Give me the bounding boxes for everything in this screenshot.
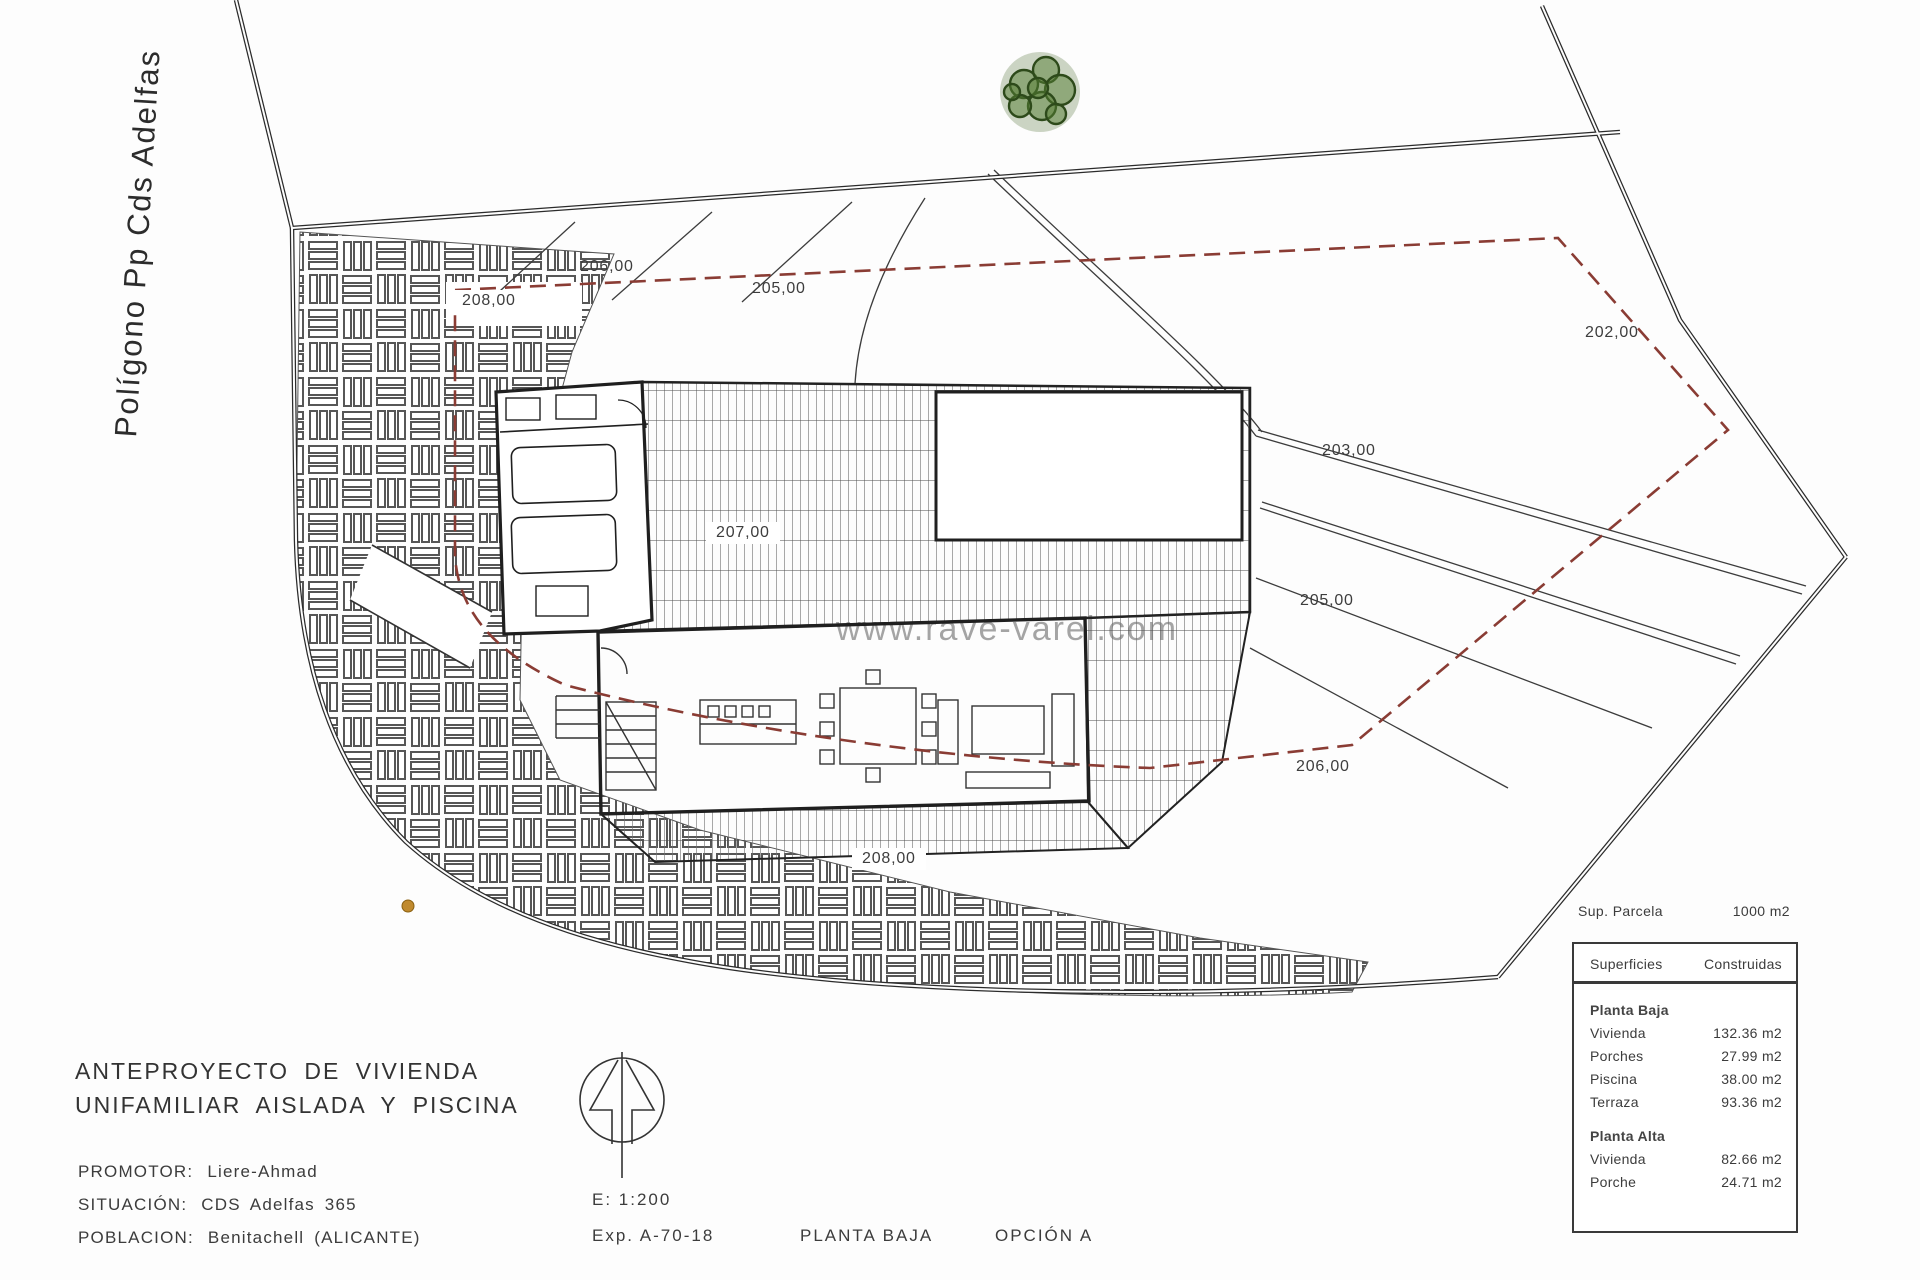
row-label: Vivienda: [1590, 1025, 1646, 1041]
tree-icon: [1000, 52, 1080, 132]
section-planta-baja: Planta Baja: [1574, 984, 1796, 1018]
parcel-area-row: Sup. Parcela 1000 m2: [1578, 903, 1790, 919]
promotor-row: PROMOTOR:Liere-Ahmad: [78, 1162, 318, 1182]
section-planta-alta: Planta Alta: [1574, 1110, 1796, 1144]
row-label: Porches: [1590, 1048, 1643, 1064]
stairs: [606, 702, 656, 790]
parcel-area-label: Sup. Parcela: [1578, 903, 1663, 919]
contour-label-202: 202,00: [1585, 324, 1639, 342]
parcel-area-value: 1000 m2: [1733, 903, 1790, 919]
north-arrow-icon: [580, 1052, 664, 1178]
row-value: 82.66 m2: [1721, 1151, 1782, 1167]
table-row: Terraza 93.36 m2: [1574, 1087, 1796, 1110]
contour-label-208-box: 208,00: [452, 290, 526, 312]
poblacion-row: POBLACION:Benitachell (ALICANTE): [78, 1228, 421, 1248]
poblacion-value: Benitachell (ALICANTE): [208, 1228, 421, 1247]
row-value: 27.99 m2: [1721, 1048, 1782, 1064]
row-label: Piscina: [1590, 1071, 1637, 1087]
row-label: Vivienda: [1590, 1151, 1646, 1167]
contour-label-205-top: 205,00: [752, 280, 806, 298]
table-row: Piscina 38.00 m2: [1574, 1064, 1796, 1087]
situacion-value: CDS Adelfas 365: [201, 1195, 356, 1214]
house-plan: [556, 618, 1089, 814]
table-row: Vivienda 132.36 m2: [1574, 1018, 1796, 1041]
option-label: OPCIÓN A: [995, 1226, 1093, 1246]
entry-steps: [556, 696, 600, 738]
contour-label-208-bottom: 208,00: [852, 848, 926, 870]
col-superficies: Superficies: [1590, 956, 1663, 972]
promotor-label: PROMOTOR:: [78, 1162, 193, 1181]
survey-marker: [402, 900, 414, 912]
poblacion-label: POBLACION:: [78, 1228, 194, 1247]
garage-wing: [496, 382, 652, 634]
table-row: Vivienda 82.66 m2: [1574, 1144, 1796, 1167]
situacion-label: SITUACIÓN:: [78, 1195, 187, 1214]
project-title-line1: ANTEPROYECTO DE VIVIENDA: [75, 1058, 479, 1085]
plan-name-label: PLANTA BAJA: [800, 1226, 933, 1246]
contour-label-203: 203,00: [1322, 442, 1376, 460]
situacion-row: SITUACIÓN:CDS Adelfas 365: [78, 1195, 357, 1215]
row-value: 93.36 m2: [1721, 1094, 1782, 1110]
contour-label-205-mid: 205,00: [1300, 592, 1354, 610]
row-value: 132.36 m2: [1713, 1025, 1782, 1041]
col-construidas: Construidas: [1704, 956, 1782, 972]
project-title-line2: UNIFAMILIAR AISLADA Y PISCINA: [75, 1092, 519, 1119]
scale-label: E: 1:200: [592, 1190, 671, 1210]
areas-table-header: Superficies Construidas: [1574, 944, 1796, 972]
row-value: 38.00 m2: [1721, 1071, 1782, 1087]
kitchen-island: [700, 700, 796, 744]
table-row: Porches 27.99 m2: [1574, 1041, 1796, 1064]
row-label: Porche: [1590, 1174, 1636, 1190]
dining-table: [820, 670, 936, 782]
expediente-label: Exp. A-70-18: [592, 1226, 714, 1246]
door-swing: [601, 648, 627, 674]
swimming-pool: [936, 392, 1242, 540]
table-row: Porche 24.71 m2: [1574, 1167, 1796, 1190]
row-value: 24.71 m2: [1721, 1174, 1782, 1190]
contour-label-206-top: 206,00: [580, 258, 634, 276]
row-label: Terraza: [1590, 1094, 1639, 1110]
living-room: [938, 694, 1074, 788]
contour-label-207: 207,00: [706, 522, 780, 544]
contour-label-206-mid: 206,00: [1296, 758, 1350, 776]
promotor-value: Liere-Ahmad: [207, 1162, 318, 1181]
areas-table: Superficies Construidas Planta Baja Vivi…: [1572, 942, 1798, 1233]
